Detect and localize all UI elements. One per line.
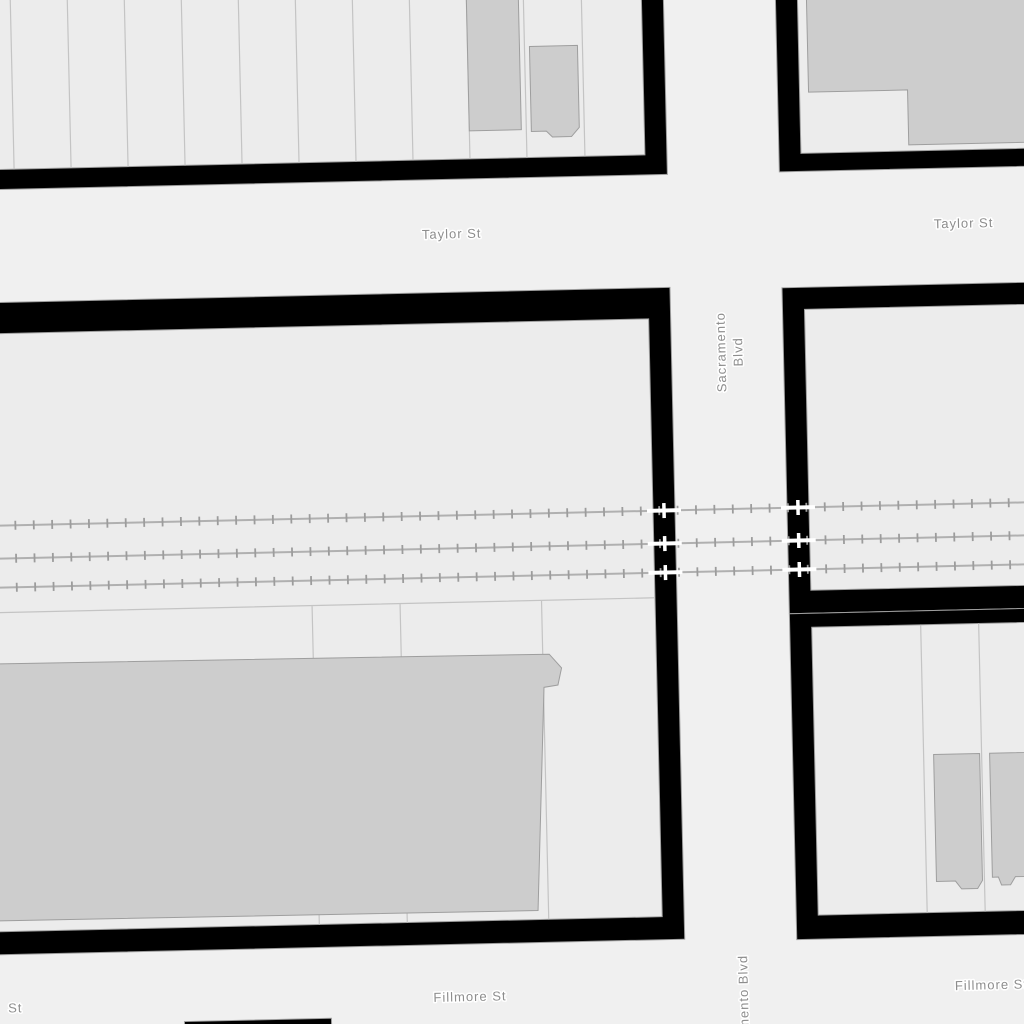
map-rotated-layer: Taylor St Taylor St Sacramento Blvd Sacr… (0, 0, 1024, 1024)
building-footprint-bottom-right-1 (934, 753, 983, 889)
street-label-taylor-st-right: Taylor St (934, 215, 994, 231)
building-footprint-bottom-right-2 (990, 750, 1024, 885)
street-label-sacramento-blvd-bottom: Sacramento Blvd (735, 955, 753, 1024)
street-label-fillmore-st-right: Fillmore St (955, 976, 1024, 993)
map-viewport[interactable]: Taylor St Taylor St Sacramento Blvd Sacr… (0, 0, 1024, 1024)
street-label-sacramento-bottom-text: Sacramento Blvd (735, 955, 753, 1024)
building-footprint-top-1 (465, 0, 521, 131)
street-label-st-partial-left: St (8, 1000, 23, 1015)
parcel-area-middle-right (804, 302, 1024, 590)
street-label-sacramento-line1: Sacramento (713, 312, 730, 392)
street-label-taylor-st-left: Taylor St (422, 226, 482, 242)
street-label-fillmore-st-center: Fillmore St (433, 988, 506, 1005)
street-label-sacramento-line2: Blvd (730, 337, 746, 367)
map-canvas[interactable]: Taylor St Taylor St Sacramento Blvd Sacr… (0, 0, 1024, 1024)
building-footprint-top-2 (529, 45, 579, 137)
building-footprint-large-warehouse (0, 651, 567, 924)
